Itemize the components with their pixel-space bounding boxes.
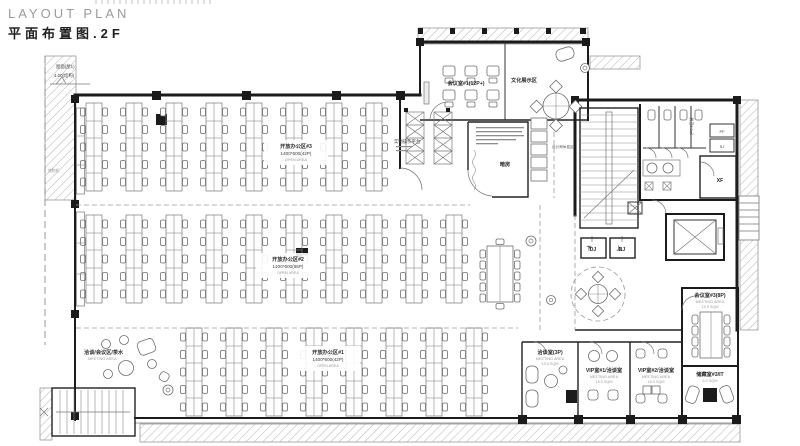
open-area-1-spec: 1400*600(42P) (313, 357, 344, 362)
page-title-en: LAYOUT PLAN (8, 6, 129, 21)
top-ruler-ticks (96, 0, 210, 4)
floor-plan-page: LAYOUT PLAN 平面布置图.2F (0, 0, 800, 446)
meeting-room-1-label: 会议室#1(12P+) (447, 79, 484, 87)
elevator (666, 214, 724, 260)
rest-area-label: 设计师休息区 (552, 144, 574, 149)
vip2-sub: MEETING AREA (642, 375, 671, 379)
dark-room: 暗房 (468, 122, 528, 197)
storage-it-room: 储藏室#3/IT 6.0 SQM (682, 366, 738, 418)
open-area-1-sub: OPEN AREA (317, 364, 339, 368)
shaft-dj: DJ (581, 238, 606, 258)
page-title-cn: 平面布置图.2F (8, 23, 129, 42)
svg-text:SJ: SJ (720, 144, 725, 149)
vip1-area: 15.0 SQM (595, 380, 612, 384)
open-area-2-spec: 1400*600(66P) (273, 264, 304, 269)
vip-room-2: VIP室#2/洽谈室 MEETING AREA 15.0 SQM (636, 349, 674, 403)
exterior-stair-ladder (739, 196, 759, 240)
cabinet-label: 储物柜 (48, 168, 60, 173)
storage-room-area: 6.0 SQM (703, 379, 718, 383)
open-area-3-label: 开放办公区#3 1400*600(42P) OPEN AREA (264, 140, 328, 165)
main-stair: 下 上 (580, 108, 638, 252)
svg-text:NJ: NJ (619, 247, 626, 253)
vip2-name: VIP室#2/洽谈室 (638, 366, 674, 374)
vip-room-1: VIP室#1/洽谈室 MEETING AREA 15.0 SQM (586, 351, 622, 401)
title-block: LAYOUT PLAN 平面布置图.2F (8, 6, 129, 42)
talk-room-3p: 洽谈室(3P) MEETING AREA 15.0 SQM (526, 348, 577, 407)
shaft-nj: NJ (610, 238, 635, 258)
meeting-room-3-sub: MEETING AREA (696, 300, 725, 304)
svg-text:DJ: DJ (590, 247, 597, 253)
presentation-screen (424, 82, 429, 104)
floor-plan-drawing: 屋面(屋1) 4.00(结构) (0, 0, 800, 446)
storage-room-name: 储藏室#3/IT (696, 370, 724, 378)
svg-text:XF: XF (717, 178, 723, 184)
mens-wc-label: 男卫6.0㎡ (689, 117, 695, 135)
workbench-area: 实物操作平台 (394, 108, 452, 164)
tea-area-sub: MEETING AREA (88, 357, 117, 361)
shaft-pf: PF (710, 124, 734, 137)
vip1-sub: MEETING AREA (590, 375, 619, 379)
vip2-area: 15.0 SQM (647, 380, 664, 384)
bottom-left-stair (40, 388, 135, 436)
talk-room-area: 15.0 SQM (541, 362, 558, 366)
roof-label-line2: 4.00(结构) (54, 72, 75, 79)
plant-icon (163, 385, 173, 395)
open-area-3-sub: OPEN AREA (285, 158, 307, 162)
tea-meeting-area: 洽谈/会议区/茶水 MEETING AREA (84, 336, 173, 396)
open-area-1-name: 开放办公区#1 (312, 348, 344, 356)
culture-area-label: 文化展示区 (511, 76, 538, 84)
workbench-label: 实物操作平台 (394, 138, 421, 145)
plant-icon (547, 296, 556, 305)
open-area-3-name: 开放办公区#3 (280, 142, 312, 150)
armchair (136, 337, 157, 356)
notes-text-block (476, 127, 524, 144)
open-area-2-label: 开放办公区#2 1400*600(66P) OPEN AREA (256, 253, 320, 278)
toilet-area: 男卫6.0㎡ PF SJ XF (643, 106, 736, 198)
meeting-room-3-area: 15.5 SQM (701, 305, 718, 309)
meeting-room-3-name: 会议室#3(8P) (694, 291, 725, 299)
open-area-1-label: 开放办公区#1 1400*600(42P) OPEN AREA (296, 346, 360, 371)
open-area-2-sub: OPEN AREA (277, 271, 299, 275)
hall-meeting-table (480, 236, 556, 309)
dark-room-label: 暗房 (500, 160, 510, 168)
walls (75, 42, 740, 423)
open-area-2-name: 开放办公区#2 (272, 255, 304, 263)
talk-room-sub: MEETING AREA (536, 357, 565, 361)
shafts-and-elevator: DJ NJ (581, 200, 724, 260)
round-table-area (571, 267, 625, 321)
shaft-sj: SJ (710, 139, 734, 152)
svg-text:PF: PF (719, 129, 725, 134)
plant-icon (581, 64, 590, 73)
open-area-3-spec: 1400*600(42P) (281, 151, 312, 156)
room-xf: XF (700, 156, 736, 198)
meeting-room-3: 会议室#3(8P) MEETING AREA 15.5 SQM (682, 288, 738, 366)
lounge-chair (555, 46, 576, 63)
culture-display-area: 文化展示区 (511, 46, 589, 132)
curtain-line (473, 150, 476, 190)
vip1-name: VIP室#1/洽谈室 (586, 366, 622, 374)
tea-area-name: 洽谈/会议区/茶水 (84, 348, 124, 356)
plant-icon (526, 236, 536, 246)
talk-room-name: 洽谈室(3P) (537, 348, 563, 356)
